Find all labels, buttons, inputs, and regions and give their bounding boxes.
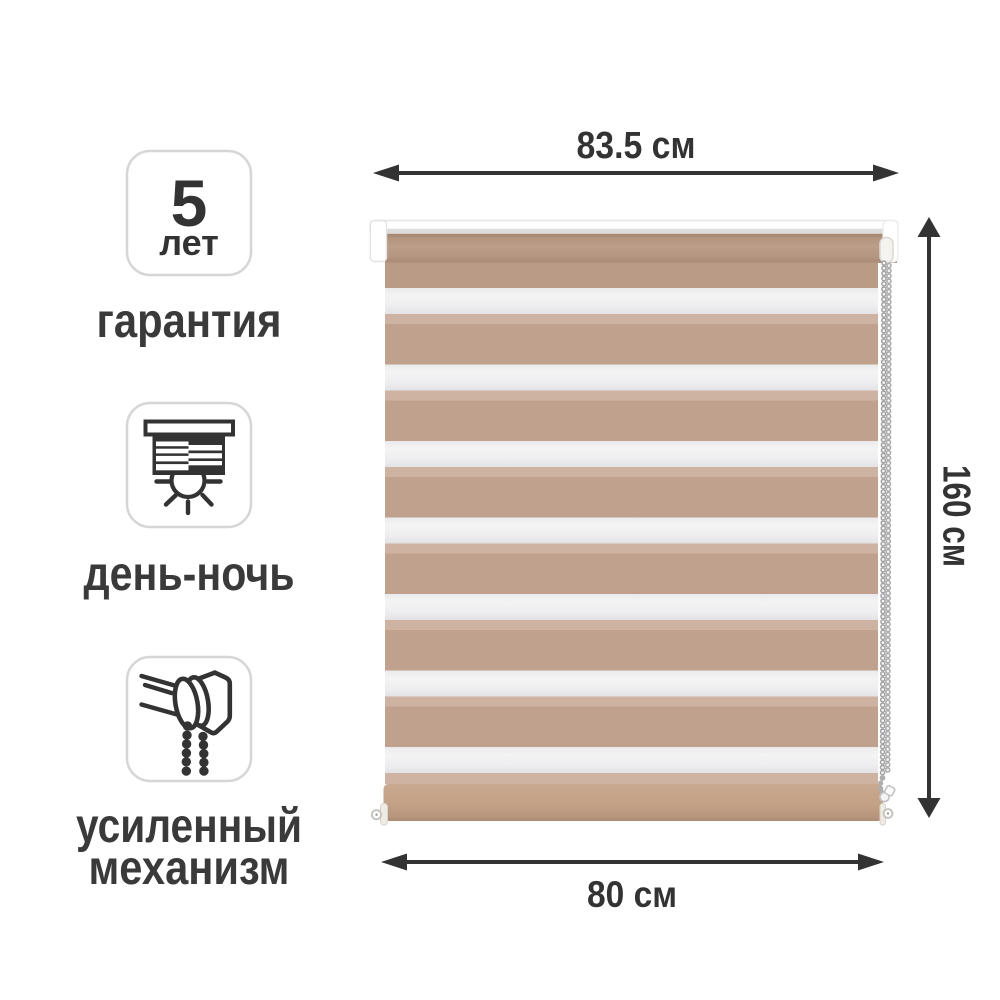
svg-text:83.5 см: 83.5 см bbox=[577, 125, 696, 167]
svg-text:лет: лет bbox=[159, 222, 219, 263]
svg-text:160 см: 160 см bbox=[935, 465, 978, 567]
svg-text:механизм: механизм bbox=[89, 842, 290, 895]
svg-text:80 см: 80 см bbox=[587, 873, 677, 915]
svg-text:день-ночь: день-ночь bbox=[84, 548, 295, 601]
svg-text:гарантия: гарантия bbox=[97, 295, 282, 348]
